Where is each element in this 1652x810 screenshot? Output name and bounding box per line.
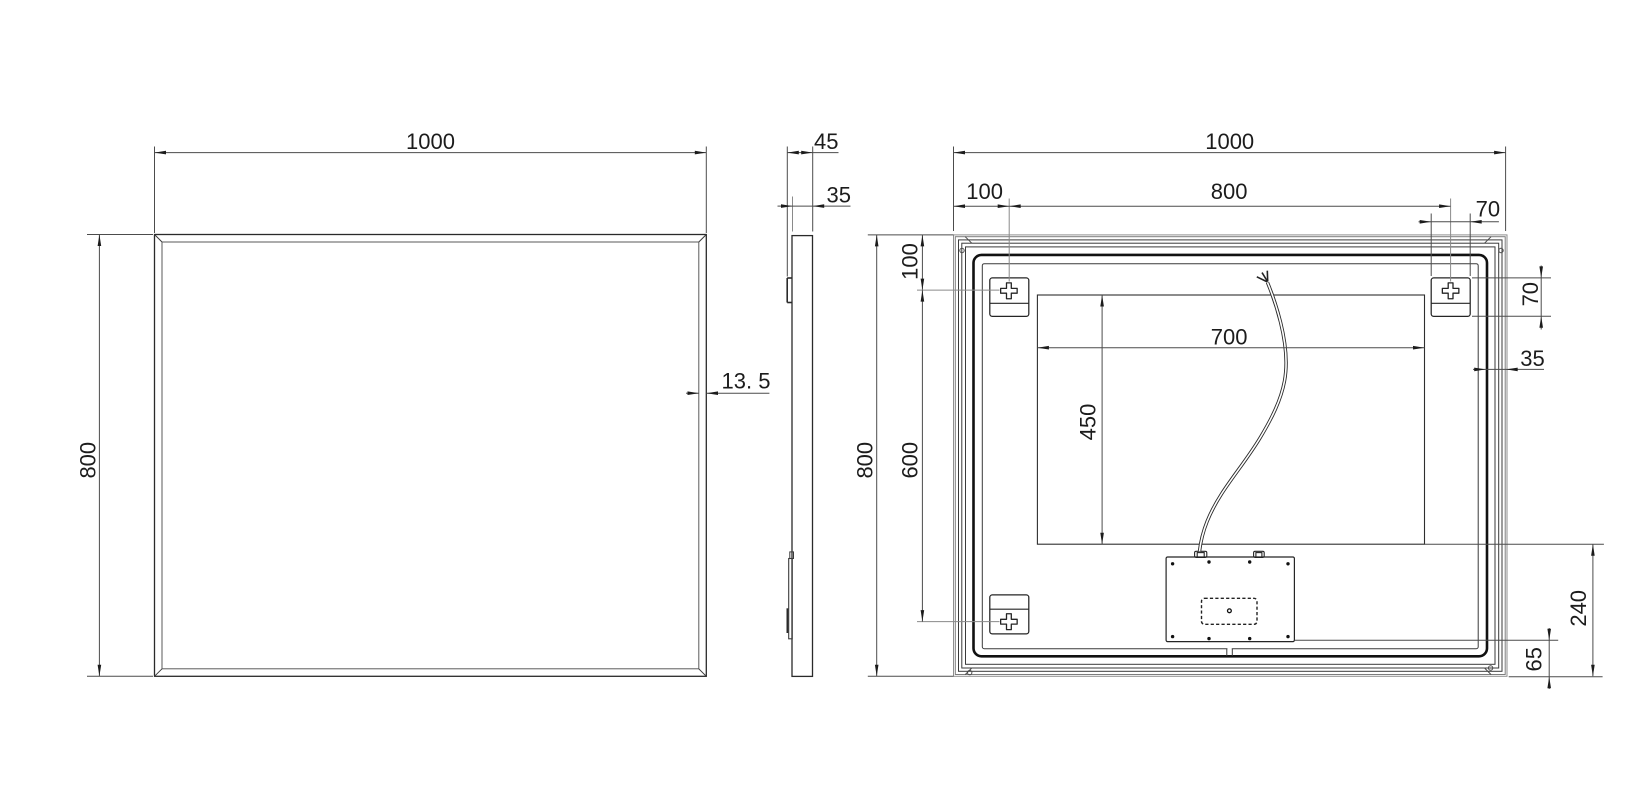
svg-text:13. 5: 13. 5 [722,369,771,394]
svg-text:1000: 1000 [406,129,455,154]
svg-text:35: 35 [1520,346,1544,371]
svg-text:700: 700 [1211,324,1248,349]
svg-text:240: 240 [1566,590,1591,627]
svg-text:65: 65 [1522,647,1547,671]
svg-text:45: 45 [814,129,838,154]
svg-text:70: 70 [1476,197,1500,222]
svg-text:800: 800 [75,442,100,479]
svg-text:100: 100 [966,179,1003,204]
svg-text:1000: 1000 [1205,129,1254,154]
svg-text:70: 70 [1518,282,1543,306]
svg-text:800: 800 [852,442,877,479]
svg-text:35: 35 [826,182,850,207]
svg-text:450: 450 [1076,404,1101,441]
svg-text:100: 100 [897,243,922,280]
svg-text:600: 600 [897,442,922,479]
svg-text:800: 800 [1211,179,1248,204]
